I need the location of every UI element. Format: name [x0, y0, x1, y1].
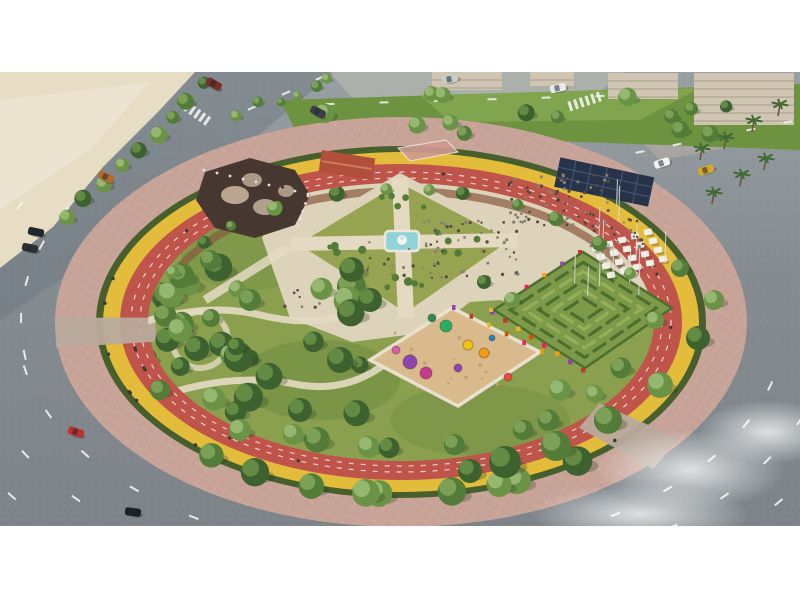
tree-highlight — [226, 221, 232, 227]
person — [562, 173, 565, 176]
wall-panel — [540, 349, 544, 354]
person — [589, 186, 592, 189]
tree-highlight — [340, 258, 355, 273]
person — [463, 236, 466, 239]
flower-bed — [542, 343, 547, 348]
person — [527, 190, 530, 193]
column — [304, 202, 307, 205]
person — [439, 232, 442, 235]
person — [509, 211, 512, 214]
shrub — [384, 284, 390, 290]
tree-highlight — [159, 283, 175, 299]
person — [593, 229, 596, 232]
runner — [266, 190, 269, 193]
tree-highlight — [155, 306, 168, 319]
play-equipment — [428, 314, 436, 322]
person — [539, 195, 542, 198]
person — [520, 212, 523, 215]
tree-highlight — [359, 437, 372, 450]
person — [429, 271, 432, 274]
column — [203, 169, 206, 172]
tree-highlight — [338, 300, 354, 316]
tree-highlight — [210, 333, 225, 348]
cyclist — [194, 443, 198, 447]
shrub — [474, 236, 481, 243]
person — [566, 177, 569, 180]
tree-highlight — [345, 401, 361, 417]
person — [527, 218, 530, 221]
play-equipment — [440, 320, 452, 332]
tree-highlight — [201, 251, 213, 263]
person — [283, 305, 286, 308]
fountain-top — [400, 236, 404, 240]
tree-highlight — [169, 319, 183, 333]
shrub — [454, 249, 462, 257]
person — [636, 236, 639, 239]
column — [302, 210, 305, 213]
shrub — [402, 194, 409, 201]
person — [402, 266, 405, 269]
tree-highlight — [705, 291, 717, 303]
person — [481, 249, 484, 252]
person — [462, 270, 465, 273]
person — [367, 265, 369, 267]
person — [490, 229, 493, 232]
play-equipment — [454, 364, 462, 372]
person — [509, 256, 511, 258]
tree-highlight — [443, 115, 453, 125]
tree-highlight — [505, 293, 515, 303]
person — [634, 232, 636, 234]
person — [434, 229, 437, 232]
flower-bed — [568, 360, 573, 365]
shrub — [445, 237, 452, 244]
play-equipment — [392, 346, 400, 354]
tree-highlight — [203, 388, 217, 402]
runner — [185, 229, 188, 232]
person — [461, 223, 463, 225]
person — [425, 242, 427, 244]
person — [464, 221, 467, 224]
person — [568, 196, 570, 198]
tree-highlight — [478, 276, 486, 284]
person — [445, 275, 448, 278]
shrub — [394, 203, 401, 210]
person — [296, 289, 299, 292]
play-item — [447, 382, 450, 385]
person — [580, 195, 583, 198]
column — [294, 190, 297, 193]
tree-highlight — [550, 380, 563, 393]
person — [503, 241, 505, 243]
tree-highlight — [253, 97, 259, 103]
person — [427, 220, 430, 223]
column — [216, 172, 219, 175]
tree-highlight — [619, 89, 630, 100]
runner — [655, 273, 658, 276]
stone-patch — [221, 186, 249, 204]
person — [408, 248, 410, 250]
person — [368, 241, 370, 243]
person — [616, 241, 619, 244]
person — [636, 220, 639, 223]
letterbox-top — [0, 0, 800, 72]
person — [589, 212, 592, 215]
person — [480, 232, 482, 234]
flower-bed — [516, 327, 521, 332]
person — [607, 209, 610, 212]
person — [623, 222, 625, 224]
aerial-park-render — [0, 0, 800, 600]
wall-panel — [452, 305, 456, 310]
person — [477, 220, 480, 223]
person — [536, 220, 539, 223]
tree-highlight — [289, 399, 303, 413]
person — [516, 273, 519, 276]
column — [229, 175, 232, 178]
scene-canvas — [0, 0, 800, 600]
person — [301, 305, 304, 308]
tree-highlight — [242, 459, 259, 476]
runner — [228, 436, 231, 439]
person — [595, 184, 598, 187]
tree-highlight — [672, 260, 683, 271]
shrub — [379, 194, 385, 200]
play-equipment — [479, 348, 489, 358]
play-equipment — [403, 355, 417, 369]
person — [603, 178, 606, 181]
person — [526, 186, 529, 189]
person — [640, 238, 643, 241]
person — [567, 190, 570, 193]
flower-bed — [581, 368, 586, 373]
person — [383, 263, 386, 266]
tree-highlight — [131, 143, 141, 153]
person — [436, 247, 439, 250]
person — [505, 238, 508, 241]
tree-highlight — [228, 338, 239, 349]
tree-highlight — [116, 159, 124, 167]
shrub — [404, 277, 413, 286]
tree-highlight — [304, 332, 316, 344]
person — [577, 215, 580, 218]
person — [564, 202, 567, 205]
person — [560, 179, 563, 182]
tree-highlight — [439, 479, 456, 496]
tree-highlight — [257, 364, 273, 380]
tree-highlight — [458, 127, 467, 136]
tree-highlight — [359, 289, 373, 303]
tree-highlight — [230, 281, 240, 291]
shrub — [419, 283, 424, 288]
person — [486, 262, 489, 265]
person — [515, 230, 518, 233]
cyclist — [103, 301, 107, 305]
runner — [143, 368, 146, 371]
flower-bed — [542, 273, 546, 277]
tree-highlight — [648, 373, 664, 389]
shrub — [358, 246, 366, 254]
person — [429, 243, 432, 246]
flower-bed — [560, 262, 564, 266]
play-item — [464, 375, 468, 379]
runner — [507, 183, 510, 186]
column — [255, 181, 258, 184]
person — [299, 296, 301, 298]
person — [562, 209, 565, 212]
person — [606, 201, 608, 203]
person — [550, 191, 553, 194]
person — [514, 213, 517, 216]
cyclist — [135, 399, 139, 403]
letterbox-bottom — [0, 526, 800, 600]
cyclist — [613, 439, 617, 443]
tree-highlight — [200, 444, 215, 459]
flower-bed — [555, 351, 560, 356]
play-item — [416, 387, 418, 389]
shrub — [421, 204, 426, 209]
play-item — [453, 358, 455, 360]
tree-highlight — [312, 81, 319, 88]
person — [567, 215, 570, 218]
person — [613, 233, 616, 236]
person — [515, 258, 517, 260]
person — [314, 306, 317, 309]
person — [539, 201, 541, 203]
tree-highlight — [687, 327, 701, 341]
tree-highlight — [235, 384, 252, 401]
tree-highlight — [381, 184, 388, 191]
tree-highlight — [151, 381, 163, 393]
person — [596, 223, 598, 225]
tree-highlight — [328, 348, 344, 364]
person — [628, 218, 631, 221]
cyclist — [128, 391, 132, 395]
play-item — [410, 347, 414, 351]
tree-highlight — [549, 212, 558, 221]
tree-highlight — [230, 420, 243, 433]
tree-highlight — [284, 425, 296, 437]
person — [545, 204, 548, 207]
tree-highlight — [203, 310, 214, 321]
column — [242, 178, 245, 181]
person — [604, 221, 607, 224]
tree-highlight — [240, 290, 253, 303]
person — [521, 209, 524, 212]
cyclist — [111, 277, 115, 281]
person — [402, 274, 405, 277]
person — [502, 221, 505, 224]
play-item — [457, 336, 461, 340]
runner — [281, 186, 284, 189]
person — [433, 263, 435, 265]
shrub — [331, 242, 339, 250]
person — [572, 223, 574, 225]
column — [297, 225, 300, 228]
person — [547, 190, 550, 193]
tree-highlight — [75, 191, 85, 201]
tree-highlight — [552, 111, 560, 119]
tree-highlight — [702, 126, 712, 136]
tree-highlight — [167, 111, 175, 119]
person — [497, 231, 500, 234]
runner — [669, 326, 672, 329]
tree-highlight — [672, 122, 683, 133]
person — [543, 224, 546, 227]
person — [387, 258, 390, 261]
play-equipment — [504, 373, 512, 381]
tree-highlight — [491, 448, 510, 467]
tree-highlight — [519, 105, 529, 115]
tree-highlight — [424, 87, 433, 96]
person — [638, 245, 641, 248]
tree-highlight — [322, 74, 328, 80]
person — [629, 229, 632, 232]
play-equipment — [420, 367, 432, 379]
play-equipment — [463, 340, 473, 350]
tree-highlight — [595, 407, 612, 424]
person — [318, 302, 321, 305]
person — [554, 196, 556, 198]
person — [611, 226, 613, 228]
wall-panel — [505, 331, 509, 336]
play-item — [485, 371, 488, 374]
person — [633, 235, 636, 238]
flower-bed — [525, 285, 529, 289]
person — [519, 220, 522, 223]
tree-highlight — [665, 110, 674, 119]
person — [641, 243, 643, 245]
person — [605, 174, 608, 177]
play-item — [450, 377, 452, 379]
tree-highlight — [539, 411, 552, 424]
tree-highlight — [353, 480, 370, 497]
person — [457, 239, 459, 241]
person — [425, 245, 428, 248]
play-item — [481, 378, 483, 380]
person — [496, 236, 499, 239]
person — [422, 266, 424, 268]
person — [446, 225, 449, 228]
cyclist — [107, 352, 111, 356]
play-item — [478, 363, 482, 367]
person — [576, 180, 579, 183]
person — [510, 198, 513, 201]
person — [431, 277, 433, 279]
tree-highlight — [198, 77, 205, 84]
person — [563, 181, 566, 184]
person — [423, 221, 426, 224]
tree-highlight — [611, 358, 624, 371]
person — [436, 241, 438, 243]
runner — [556, 198, 559, 201]
tree-highlight — [380, 439, 392, 451]
person — [556, 190, 559, 193]
person — [540, 184, 543, 187]
person — [485, 240, 488, 243]
column — [299, 217, 302, 220]
wall-panel — [522, 340, 526, 345]
person — [583, 191, 586, 194]
person — [466, 275, 469, 278]
person — [390, 273, 393, 276]
person — [592, 213, 595, 216]
stone-patch — [242, 173, 262, 187]
stone-patch — [278, 185, 294, 197]
person — [537, 184, 540, 187]
person — [600, 189, 603, 192]
tree-highlight — [592, 236, 601, 245]
tree-highlight — [409, 117, 419, 127]
person — [437, 263, 439, 265]
runner — [134, 348, 137, 351]
person — [469, 221, 472, 224]
tree-highlight — [685, 103, 693, 111]
tree-highlight — [172, 358, 183, 369]
car-windshield — [129, 509, 135, 516]
tree-highlight — [60, 210, 69, 219]
person — [607, 180, 610, 183]
column — [268, 184, 271, 187]
person — [369, 257, 371, 259]
person — [525, 216, 528, 219]
person — [501, 273, 504, 276]
person — [513, 177, 516, 180]
person — [528, 211, 531, 214]
flower-bed — [578, 250, 582, 254]
person — [434, 250, 437, 253]
person — [440, 276, 443, 279]
tree-highlight — [277, 98, 282, 103]
tree-highlight — [178, 94, 188, 104]
person — [505, 248, 507, 250]
tree-highlight — [445, 435, 458, 448]
runner — [297, 459, 300, 462]
person — [367, 268, 369, 270]
person — [443, 222, 446, 225]
person — [457, 229, 460, 232]
person — [565, 223, 568, 226]
tree-highlight — [721, 101, 728, 108]
tree-highlight — [293, 92, 298, 97]
tree-highlight — [459, 460, 473, 474]
person — [449, 225, 452, 228]
wall-panel — [470, 314, 474, 319]
person — [592, 174, 595, 177]
person — [563, 187, 566, 190]
person — [441, 250, 444, 253]
runner — [442, 172, 445, 175]
tree-highlight — [456, 187, 464, 195]
person — [480, 222, 482, 224]
tree-highlight — [424, 185, 431, 192]
tree-highlight — [587, 386, 597, 396]
person — [440, 221, 443, 224]
person — [524, 196, 527, 199]
person — [599, 222, 602, 225]
tree-highlight — [312, 279, 325, 292]
flower-bed — [489, 308, 493, 312]
person — [391, 264, 393, 266]
person — [411, 264, 414, 267]
tree-highlight — [306, 428, 321, 443]
tree-highlight — [543, 433, 561, 451]
person — [540, 175, 543, 178]
tree-highlight — [512, 200, 519, 207]
person — [276, 284, 278, 286]
play-item — [496, 383, 499, 386]
tree-highlight — [514, 421, 526, 433]
